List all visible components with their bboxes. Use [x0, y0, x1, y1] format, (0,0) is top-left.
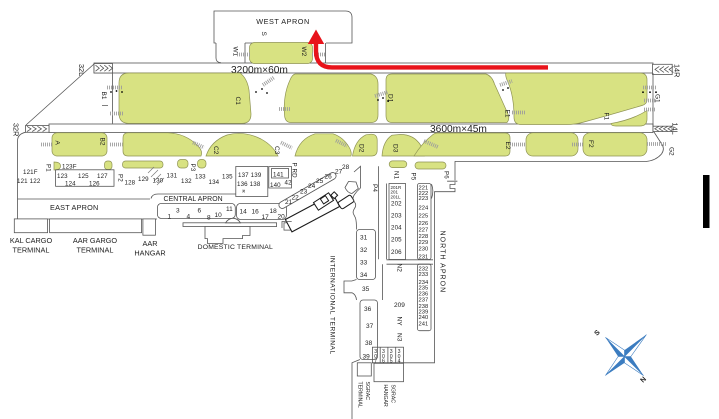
svg-text:32: 32: [360, 247, 368, 254]
svg-text:D3: D3: [392, 144, 399, 153]
svg-text:237: 237: [419, 298, 429, 304]
svg-text:NY: NY: [396, 317, 403, 327]
svg-text:225: 225: [419, 213, 429, 219]
svg-text:233: 233: [419, 272, 429, 278]
svg-text:WEST APRON: WEST APRON: [256, 17, 310, 26]
svg-text:AAR: AAR: [142, 239, 157, 248]
svg-text:33: 33: [360, 260, 368, 267]
svg-text:C1: C1: [234, 97, 241, 106]
svg-text:TERMINAL: TERMINAL: [357, 382, 363, 408]
svg-text:39: 39: [363, 354, 371, 361]
svg-text:133: 133: [195, 174, 206, 181]
svg-text:10: 10: [215, 212, 223, 219]
svg-text:SGRAC: SGRAC: [364, 382, 370, 401]
svg-text:N3: N3: [396, 333, 403, 342]
svg-text:224: 224: [419, 206, 429, 212]
svg-text:229: 229: [419, 240, 429, 246]
svg-text:DOMESTIC TERMINAL: DOMESTIC TERMINAL: [198, 244, 273, 251]
svg-text:25: 25: [316, 178, 324, 185]
svg-text:F2: F2: [587, 140, 594, 148]
svg-text:134: 134: [209, 179, 220, 186]
svg-text:135: 135: [222, 174, 233, 181]
svg-text:A: A: [54, 141, 61, 146]
svg-text:16: 16: [252, 209, 260, 216]
svg-text:236: 236: [419, 291, 429, 297]
svg-text:31: 31: [360, 235, 368, 242]
svg-text:32R: 32R: [12, 123, 21, 136]
svg-text:SGRAC: SGRAC: [390, 385, 396, 404]
svg-text:CENTRAL APRON: CENTRAL APRON: [164, 196, 223, 203]
svg-text:P2: P2: [117, 174, 124, 182]
svg-text:125: 125: [78, 173, 89, 180]
svg-text:35: 35: [362, 286, 370, 293]
svg-text:206: 206: [391, 249, 402, 256]
svg-text:6: 6: [198, 208, 202, 215]
svg-text:TERMINAL: TERMINAL: [13, 246, 50, 255]
svg-text:D2: D2: [358, 144, 365, 153]
svg-text:EAST APRON: EAST APRON: [50, 203, 99, 212]
svg-text:1: 1: [168, 214, 172, 221]
svg-text:223: 223: [419, 196, 429, 202]
svg-text:123: 123: [57, 173, 68, 180]
svg-text:137 139: 137 139: [238, 172, 262, 179]
svg-text:131: 131: [167, 173, 178, 180]
svg-text:3: 3: [176, 208, 180, 215]
svg-text:E1: E1: [504, 110, 511, 118]
svg-text:E2: E2: [504, 142, 511, 150]
svg-text:34: 34: [360, 272, 368, 279]
svg-text:37: 37: [366, 323, 374, 330]
svg-text:P RD: P RD: [291, 163, 298, 179]
svg-text:28: 28: [342, 164, 350, 171]
svg-text:P5: P5: [410, 173, 417, 181]
svg-text:123F: 123F: [62, 163, 77, 170]
svg-text:26: 26: [325, 173, 333, 180]
svg-text:C3: C3: [273, 146, 280, 155]
svg-text:136 138: 136 138: [237, 181, 261, 188]
svg-text:17: 17: [262, 214, 270, 221]
svg-text:14L: 14L: [671, 123, 680, 135]
svg-text:203: 203: [391, 213, 402, 220]
svg-text:P3: P3: [189, 164, 196, 172]
svg-text:127: 127: [97, 173, 108, 180]
svg-text:B2: B2: [99, 138, 106, 146]
svg-text:N2: N2: [396, 264, 403, 273]
svg-text:124: 124: [65, 180, 76, 187]
svg-text:INTERNATIONAL TERMINAL: INTERNATIONAL TERMINAL: [329, 256, 336, 355]
svg-text:126: 126: [89, 180, 100, 187]
svg-text:HANGAR: HANGAR: [134, 249, 165, 258]
svg-text:20: 20: [278, 214, 286, 221]
svg-text:23: 23: [300, 189, 308, 196]
svg-text:227: 227: [419, 228, 429, 234]
svg-text:NORTH APRON: NORTH APRON: [439, 231, 446, 294]
svg-text:201L: 201L: [391, 194, 402, 199]
svg-text:38: 38: [365, 340, 373, 347]
svg-text:P1: P1: [45, 164, 52, 172]
svg-text:KAL CARGO: KAL CARGO: [10, 236, 53, 245]
svg-text:240: 240: [419, 315, 429, 321]
svg-text:N1: N1: [393, 171, 400, 180]
svg-text:11: 11: [226, 206, 233, 213]
svg-text:130: 130: [153, 178, 164, 185]
svg-text:W2: W2: [300, 47, 307, 57]
svg-text:121 122: 121 122: [17, 178, 41, 185]
svg-text:S: S: [260, 32, 267, 37]
svg-text:209: 209: [394, 302, 405, 309]
svg-text:G2: G2: [668, 147, 675, 156]
svg-text:B1: B1: [100, 92, 107, 100]
svg-text:121F: 121F: [23, 169, 38, 176]
svg-text:141: 141: [273, 172, 284, 179]
svg-text:P4: P4: [371, 184, 378, 192]
svg-text:P6: P6: [443, 171, 450, 179]
svg-text:22: 22: [292, 194, 300, 201]
svg-text:4: 4: [187, 214, 191, 221]
svg-text:128: 128: [125, 180, 136, 187]
svg-text:132: 132: [181, 178, 192, 185]
svg-text:24: 24: [308, 183, 316, 190]
svg-text:F1: F1: [603, 113, 610, 121]
svg-text:TERMINAL: TERMINAL: [77, 246, 114, 255]
svg-text:14: 14: [240, 209, 248, 216]
svg-text:140: 140: [270, 182, 281, 189]
svg-text:36: 36: [364, 306, 372, 313]
svg-text:42: 42: [285, 180, 293, 187]
svg-text:202: 202: [391, 201, 402, 208]
svg-text:230: 230: [419, 247, 429, 253]
svg-text:241: 241: [419, 322, 429, 328]
svg-text:228: 228: [419, 234, 429, 240]
svg-text:32L: 32L: [77, 64, 86, 76]
svg-text:AAR GARGO: AAR GARGO: [73, 236, 118, 245]
svg-text:C2: C2: [212, 146, 219, 155]
svg-text:8: 8: [207, 215, 211, 222]
svg-text:HANGAR: HANGAR: [382, 385, 388, 407]
svg-text:129: 129: [138, 176, 149, 183]
svg-text:204: 204: [391, 225, 402, 232]
svg-text:14R: 14R: [673, 64, 682, 77]
svg-text:18: 18: [270, 208, 278, 215]
svg-text:226: 226: [419, 221, 429, 227]
svg-text:205: 205: [391, 237, 402, 244]
